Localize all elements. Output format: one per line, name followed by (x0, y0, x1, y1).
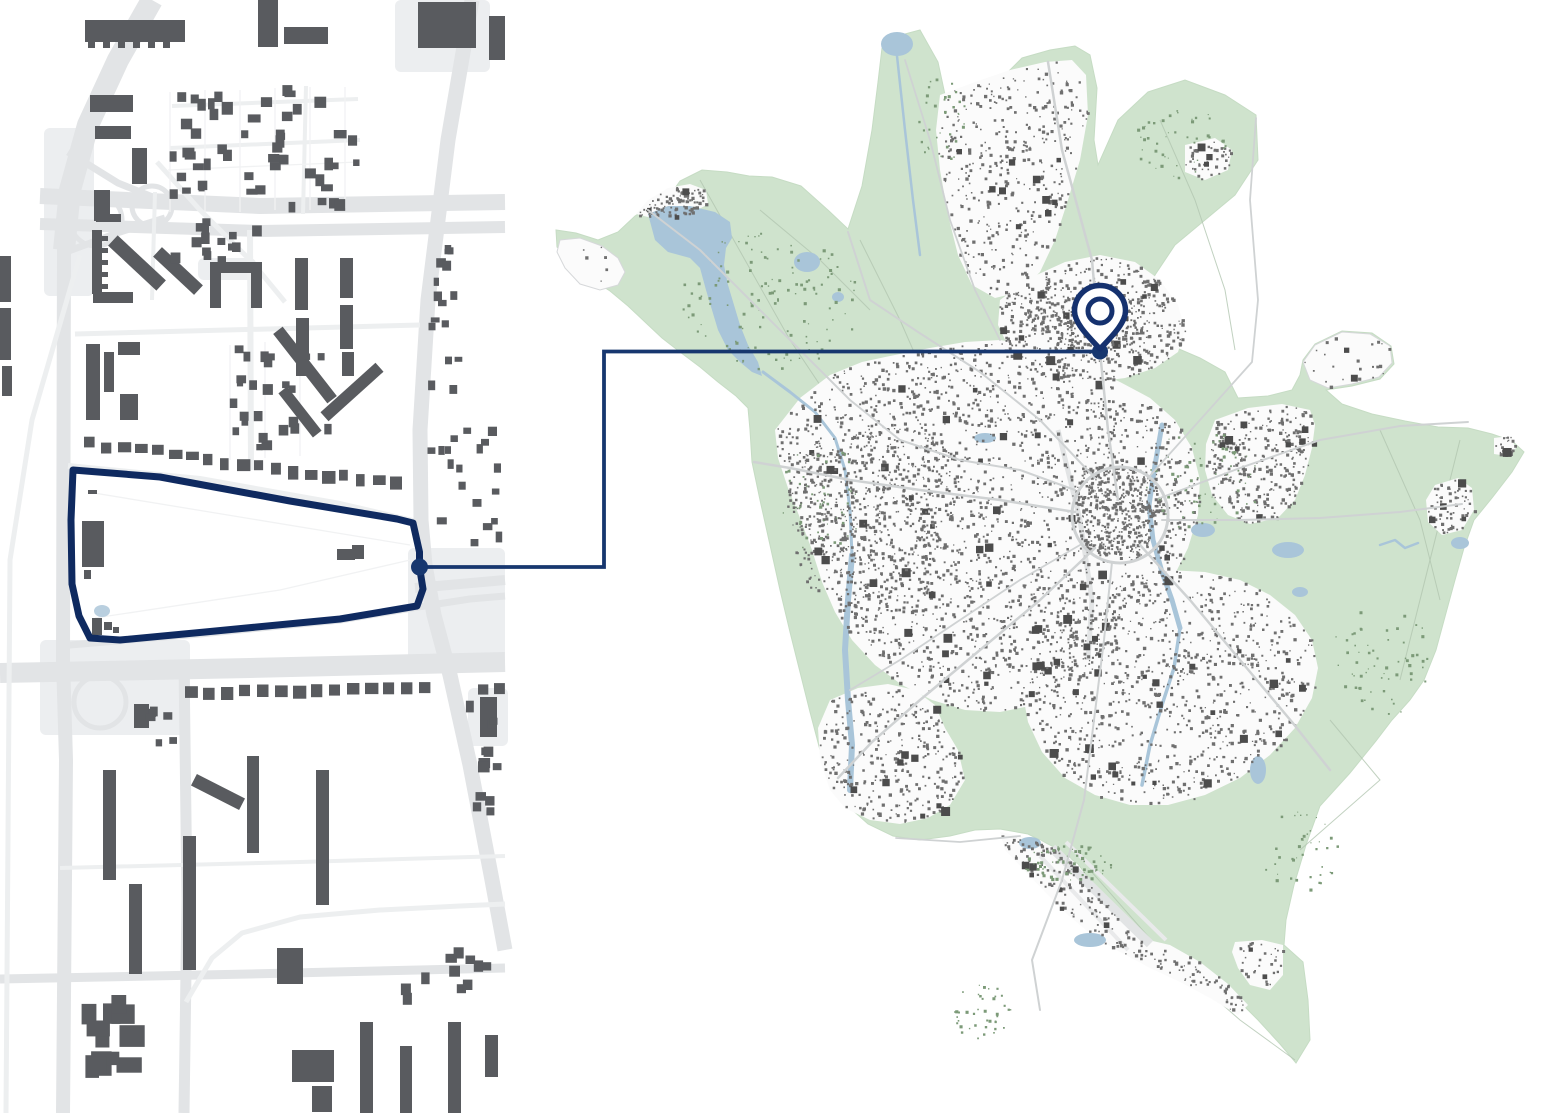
tree-specks (954, 985, 1011, 1039)
house (217, 238, 225, 245)
house (169, 450, 183, 459)
house (485, 796, 494, 806)
house (318, 198, 327, 205)
building (183, 836, 196, 970)
house (483, 962, 491, 970)
house (214, 92, 222, 102)
house (438, 300, 447, 306)
building (448, 1022, 461, 1113)
site-location-diagram (0, 0, 1553, 1113)
house (493, 763, 502, 770)
building (489, 16, 505, 60)
house (244, 172, 253, 180)
building (316, 770, 329, 905)
house (449, 385, 457, 394)
house (289, 202, 296, 213)
house (473, 499, 482, 507)
house (146, 714, 156, 721)
house (442, 261, 451, 271)
house (204, 159, 211, 171)
house (478, 761, 490, 772)
building (102, 248, 108, 253)
house (241, 130, 248, 138)
house (257, 685, 269, 698)
building (418, 2, 476, 48)
site-plan-map (0, 0, 508, 1113)
building (92, 618, 102, 635)
house (311, 684, 322, 697)
building (210, 262, 221, 308)
building-slab (108, 235, 166, 290)
house (218, 256, 226, 263)
pond (1191, 523, 1215, 537)
house (246, 189, 257, 195)
building (133, 42, 140, 48)
house (421, 972, 429, 984)
house (170, 151, 177, 161)
house (185, 151, 196, 159)
house (208, 98, 215, 109)
leader-line-site-dot (411, 559, 428, 576)
house (334, 199, 345, 211)
building (84, 570, 91, 579)
site-boundary-outline (71, 470, 423, 640)
building (340, 305, 353, 349)
site-pond (94, 605, 110, 617)
house (268, 154, 279, 162)
house (236, 375, 246, 383)
pond (1292, 587, 1308, 597)
pond (832, 292, 844, 302)
house (244, 352, 251, 362)
building (258, 0, 278, 47)
house (318, 353, 325, 360)
house (383, 682, 394, 694)
house (434, 278, 439, 286)
house (314, 97, 326, 108)
pond (1250, 756, 1266, 784)
house (111, 995, 126, 1014)
building (88, 490, 97, 494)
house (171, 253, 181, 264)
house (429, 323, 436, 331)
house (304, 354, 311, 360)
house (254, 460, 263, 470)
north-water-body (881, 32, 913, 56)
house (494, 463, 501, 472)
building (95, 126, 131, 139)
house (239, 685, 250, 696)
house (282, 85, 292, 96)
house (293, 686, 306, 699)
building (102, 284, 108, 289)
building (340, 258, 353, 298)
house (170, 189, 178, 199)
house (474, 960, 483, 971)
house (288, 466, 298, 480)
building (120, 394, 138, 420)
building (163, 42, 170, 48)
parcel-line (88, 492, 410, 545)
house (275, 685, 288, 697)
house (279, 425, 289, 436)
building (102, 272, 108, 277)
house (249, 380, 257, 390)
house (203, 688, 215, 700)
house (252, 225, 262, 236)
house (428, 447, 436, 454)
building (277, 948, 303, 984)
house (186, 452, 199, 460)
diagram-canvas (0, 0, 1553, 1113)
house (322, 471, 336, 484)
house (169, 737, 177, 744)
house (118, 442, 131, 452)
house (459, 482, 466, 490)
house (454, 947, 464, 958)
house (490, 718, 498, 725)
house (185, 686, 198, 698)
house (221, 687, 233, 700)
parcel-line (95, 560, 410, 618)
house (232, 242, 241, 252)
house (463, 428, 471, 434)
house (324, 424, 331, 435)
house (356, 474, 365, 486)
house (193, 163, 204, 170)
house (473, 802, 481, 811)
house (254, 411, 263, 421)
house (483, 523, 493, 530)
house (261, 97, 272, 107)
house (271, 463, 281, 475)
house (419, 682, 430, 693)
building (118, 42, 125, 48)
house (330, 163, 338, 170)
building (102, 236, 108, 241)
building (342, 352, 354, 376)
house (390, 477, 402, 490)
house (181, 119, 192, 130)
house (87, 1021, 110, 1037)
house (223, 150, 232, 161)
house (438, 446, 444, 455)
house (182, 188, 191, 194)
house (263, 384, 273, 395)
house (305, 168, 316, 178)
house (233, 427, 240, 435)
house (270, 162, 281, 170)
house (222, 102, 233, 115)
house (477, 444, 483, 453)
building (104, 352, 114, 392)
house (339, 470, 348, 481)
building (480, 697, 497, 737)
house (434, 292, 442, 302)
building (129, 884, 142, 974)
house (289, 417, 299, 428)
city-context-map (556, 30, 1524, 1063)
pond (1074, 933, 1106, 947)
house (135, 444, 148, 453)
house (442, 320, 449, 327)
house (321, 184, 333, 191)
building (247, 756, 259, 853)
house (204, 251, 212, 260)
house (496, 532, 503, 543)
house (163, 712, 172, 720)
house (230, 399, 238, 409)
building (96, 214, 121, 222)
house (220, 458, 229, 470)
building (118, 342, 140, 355)
house (264, 360, 273, 368)
building (295, 258, 308, 310)
building (0, 308, 11, 360)
house (248, 114, 261, 122)
building (251, 262, 262, 308)
house (471, 539, 479, 546)
building (102, 260, 108, 265)
house (451, 435, 458, 442)
house (456, 465, 462, 473)
house (202, 225, 209, 236)
house (192, 237, 202, 247)
house (494, 683, 505, 694)
building (352, 545, 364, 559)
house (191, 95, 199, 104)
building (86, 344, 100, 420)
building (284, 27, 328, 44)
house (492, 489, 500, 495)
pond (1451, 537, 1469, 549)
house (242, 419, 249, 426)
house (210, 109, 219, 120)
house (87, 1057, 107, 1075)
house (437, 517, 447, 524)
building (88, 42, 95, 48)
house (353, 159, 359, 166)
house (199, 185, 205, 192)
house (229, 232, 237, 240)
house (401, 682, 412, 694)
house (466, 956, 476, 965)
building-slab (191, 774, 245, 810)
pond (794, 252, 820, 272)
building (485, 1035, 498, 1077)
house (445, 357, 452, 365)
pin-inner-ring (1088, 299, 1112, 323)
house (347, 683, 359, 695)
house (488, 427, 497, 436)
road (0, 662, 505, 673)
house (272, 142, 282, 152)
house (84, 437, 95, 448)
house (431, 317, 440, 322)
pond (1272, 542, 1304, 558)
house (177, 92, 186, 102)
house (203, 454, 212, 465)
building (103, 770, 116, 880)
house (276, 130, 285, 138)
building (90, 95, 133, 112)
house (463, 980, 473, 990)
house (365, 683, 378, 694)
building (93, 292, 133, 303)
house (334, 130, 347, 138)
house (293, 104, 302, 115)
house (191, 128, 201, 138)
house (445, 249, 452, 255)
house (445, 446, 451, 454)
building (2, 366, 12, 396)
large-buildings-far-east-village (1503, 448, 1512, 457)
building (85, 20, 185, 42)
house (156, 739, 162, 746)
building (148, 42, 155, 48)
building (400, 1046, 412, 1113)
house (449, 966, 460, 977)
house (101, 443, 111, 454)
house (484, 747, 494, 757)
house (289, 385, 296, 393)
road (303, 86, 306, 214)
building (103, 42, 110, 48)
house (455, 357, 463, 362)
building (113, 627, 119, 633)
house (259, 433, 268, 443)
house (282, 112, 293, 121)
house (450, 291, 457, 300)
building (360, 1022, 373, 1113)
house (117, 1057, 142, 1072)
house (282, 381, 290, 388)
house (428, 381, 435, 391)
building (104, 622, 112, 630)
building (82, 521, 104, 567)
house (329, 685, 340, 696)
house (120, 1025, 145, 1047)
road (170, 140, 360, 148)
house (476, 792, 487, 801)
house (401, 984, 411, 996)
house (177, 173, 186, 182)
house (373, 475, 386, 485)
house (486, 807, 494, 815)
building (312, 1086, 332, 1112)
house (305, 470, 318, 480)
building (292, 1050, 334, 1082)
building (0, 256, 11, 302)
house (235, 345, 244, 353)
house (478, 684, 488, 694)
road (60, 856, 505, 868)
house (152, 445, 164, 455)
house (237, 459, 250, 471)
building (132, 148, 147, 184)
house (448, 459, 454, 469)
building (92, 230, 102, 294)
house (466, 701, 474, 713)
house (348, 135, 357, 145)
